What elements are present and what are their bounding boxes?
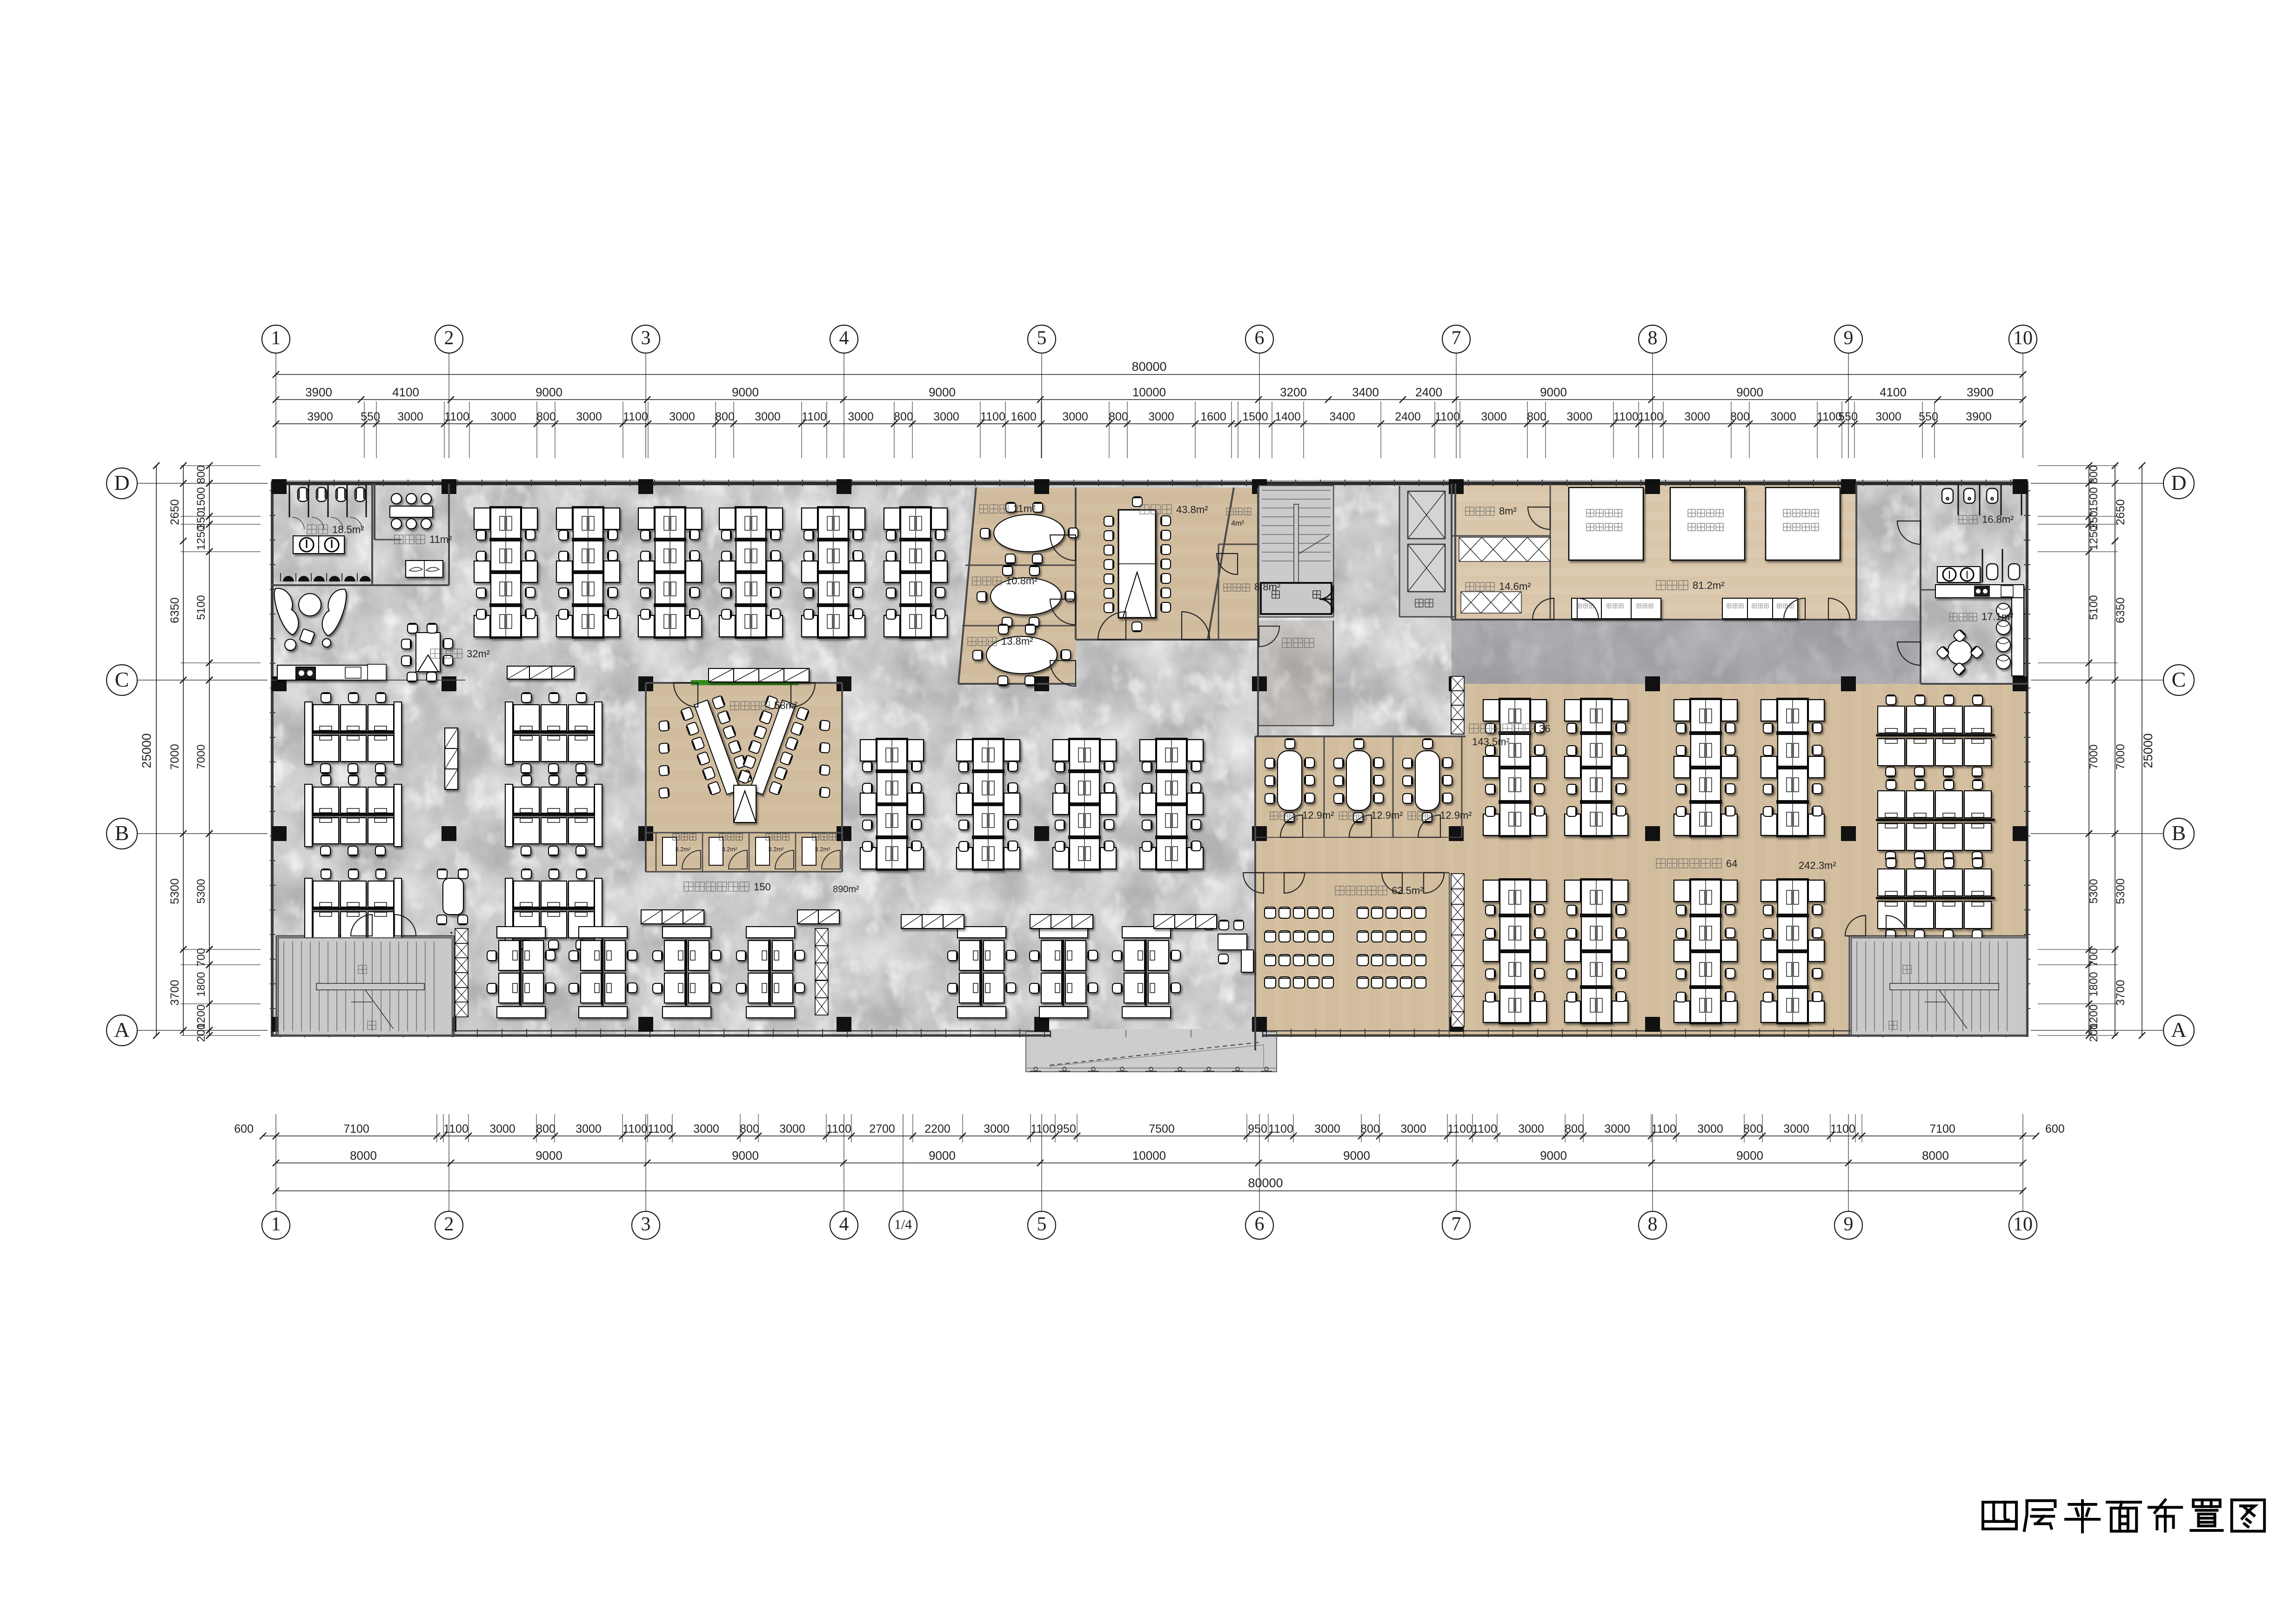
svg-text:8: 8 bbox=[1648, 327, 1658, 349]
svg-text:3000: 3000 bbox=[755, 410, 781, 423]
svg-text:8000: 8000 bbox=[1922, 1149, 1949, 1162]
svg-text:5300: 5300 bbox=[2114, 878, 2127, 904]
svg-text:800: 800 bbox=[715, 410, 735, 423]
svg-text:3000: 3000 bbox=[1684, 410, 1710, 423]
svg-text:3000: 3000 bbox=[1062, 410, 1088, 423]
svg-text:80000: 80000 bbox=[1248, 1176, 1283, 1190]
svg-text:7000: 7000 bbox=[168, 744, 181, 770]
svg-text:C: C bbox=[115, 668, 129, 691]
svg-text:150: 150 bbox=[754, 881, 771, 893]
svg-text:3200: 3200 bbox=[1280, 385, 1307, 399]
svg-text:700: 700 bbox=[195, 948, 208, 967]
svg-text:10000: 10000 bbox=[1132, 385, 1166, 399]
svg-text:1100: 1100 bbox=[1447, 1122, 1473, 1135]
svg-text:4100: 4100 bbox=[1880, 385, 1907, 399]
svg-text:3000: 3000 bbox=[1148, 410, 1174, 423]
svg-text:12.9m²: 12.9m² bbox=[1371, 809, 1403, 821]
svg-text:1500: 1500 bbox=[2088, 487, 2100, 512]
svg-text:11m²: 11m² bbox=[1013, 503, 1036, 514]
svg-text:3700: 3700 bbox=[2114, 980, 2127, 1006]
svg-text:10: 10 bbox=[2013, 1214, 2033, 1235]
svg-text:9000: 9000 bbox=[1343, 1149, 1370, 1162]
svg-text:3000: 3000 bbox=[693, 1122, 719, 1135]
svg-text:800: 800 bbox=[1109, 410, 1128, 423]
svg-text:1100: 1100 bbox=[1651, 1122, 1676, 1135]
svg-text:2650: 2650 bbox=[168, 499, 181, 525]
svg-text:10000: 10000 bbox=[1132, 1149, 1166, 1162]
svg-text:6: 6 bbox=[1255, 1214, 1265, 1235]
svg-text:4m²: 4m² bbox=[1231, 520, 1244, 528]
svg-text:950: 950 bbox=[1057, 1122, 1076, 1135]
svg-text:62.5m²: 62.5m² bbox=[1392, 885, 1423, 896]
svg-text:1100: 1100 bbox=[623, 410, 648, 423]
svg-text:14.6m²: 14.6m² bbox=[1499, 581, 1531, 592]
svg-text:9000: 9000 bbox=[1540, 1149, 1567, 1162]
svg-text:800: 800 bbox=[1527, 410, 1546, 423]
svg-text:5100: 5100 bbox=[2088, 595, 2100, 620]
svg-text:800: 800 bbox=[740, 1122, 759, 1135]
svg-text:5300: 5300 bbox=[2088, 879, 2100, 903]
svg-text:1250: 1250 bbox=[2088, 525, 2100, 550]
svg-text:3900: 3900 bbox=[307, 410, 333, 423]
svg-text:3400: 3400 bbox=[1329, 410, 1355, 423]
svg-text:1100: 1100 bbox=[802, 410, 827, 423]
svg-text:3000: 3000 bbox=[848, 410, 874, 423]
svg-text:8m²: 8m² bbox=[1499, 505, 1517, 517]
svg-text:9000: 9000 bbox=[536, 385, 562, 399]
svg-text:2400: 2400 bbox=[1395, 410, 1421, 423]
svg-text:12.9m²: 12.9m² bbox=[1302, 809, 1334, 821]
svg-text:2650: 2650 bbox=[2114, 499, 2127, 525]
svg-text:1: 1 bbox=[271, 327, 281, 349]
svg-text:3000: 3000 bbox=[1400, 1122, 1426, 1135]
svg-text:200: 200 bbox=[195, 1023, 208, 1042]
svg-text:3.2m²: 3.2m² bbox=[675, 846, 691, 853]
svg-text:600: 600 bbox=[234, 1122, 254, 1135]
svg-text:12.9m²: 12.9m² bbox=[1440, 809, 1472, 821]
svg-text:1/4: 1/4 bbox=[894, 1217, 912, 1232]
svg-text:25000: 25000 bbox=[140, 733, 154, 768]
svg-text:7500: 7500 bbox=[1149, 1122, 1175, 1135]
svg-text:7100: 7100 bbox=[343, 1122, 369, 1135]
svg-text:3000: 3000 bbox=[576, 410, 602, 423]
svg-text:8000: 8000 bbox=[350, 1149, 377, 1162]
svg-text:1500: 1500 bbox=[195, 487, 208, 512]
svg-text:800: 800 bbox=[894, 410, 913, 423]
svg-text:1800: 1800 bbox=[195, 972, 208, 996]
svg-text:8: 8 bbox=[1648, 1214, 1658, 1235]
svg-text:1100: 1100 bbox=[1031, 1122, 1056, 1135]
svg-text:16.8m²: 16.8m² bbox=[1982, 514, 2014, 525]
svg-text:32m²: 32m² bbox=[467, 648, 490, 660]
svg-text:3000: 3000 bbox=[1566, 410, 1593, 423]
svg-text:3000: 3000 bbox=[1518, 1122, 1544, 1135]
svg-text:9000: 9000 bbox=[929, 1149, 956, 1162]
svg-text:7: 7 bbox=[1452, 327, 1461, 349]
svg-text:3900: 3900 bbox=[1967, 385, 1994, 399]
svg-text:800: 800 bbox=[1360, 1122, 1380, 1135]
svg-text:3900: 3900 bbox=[1966, 410, 1992, 423]
svg-text:11m²: 11m² bbox=[429, 534, 452, 545]
svg-text:1100: 1100 bbox=[648, 1122, 673, 1135]
svg-text:1500: 1500 bbox=[1242, 410, 1268, 423]
svg-text:3: 3 bbox=[641, 1214, 651, 1235]
svg-text:550: 550 bbox=[1919, 410, 1938, 423]
svg-text:5100: 5100 bbox=[195, 595, 208, 620]
svg-text:5: 5 bbox=[1037, 1214, 1047, 1235]
svg-text:81.2m²: 81.2m² bbox=[1693, 580, 1724, 591]
svg-text:80000: 80000 bbox=[1131, 360, 1166, 374]
svg-text:3000: 3000 bbox=[397, 410, 423, 423]
svg-text:550: 550 bbox=[361, 410, 380, 423]
svg-text:B: B bbox=[2172, 821, 2186, 845]
svg-text:950: 950 bbox=[1248, 1122, 1267, 1135]
svg-text:3000: 3000 bbox=[1783, 1122, 1809, 1135]
svg-text:4: 4 bbox=[839, 327, 849, 349]
svg-text:3000: 3000 bbox=[779, 1122, 805, 1135]
svg-text:9000: 9000 bbox=[1736, 385, 1763, 399]
svg-text:A: A bbox=[2171, 1018, 2186, 1042]
svg-text:3000: 3000 bbox=[1770, 410, 1796, 423]
svg-text:2200: 2200 bbox=[924, 1122, 951, 1135]
svg-text:1100: 1100 bbox=[1830, 1122, 1855, 1135]
svg-text:3000: 3000 bbox=[576, 1122, 602, 1135]
svg-text:58m²: 58m² bbox=[774, 700, 797, 711]
svg-text:5300: 5300 bbox=[168, 878, 181, 904]
svg-text:3000: 3000 bbox=[1697, 1122, 1723, 1135]
svg-text:36: 36 bbox=[1539, 723, 1550, 735]
svg-text:9000: 9000 bbox=[732, 385, 759, 399]
svg-text:1250: 1250 bbox=[195, 525, 208, 550]
svg-text:1100: 1100 bbox=[826, 1122, 851, 1135]
svg-text:25000: 25000 bbox=[2141, 733, 2155, 768]
svg-text:1100: 1100 bbox=[443, 1122, 469, 1135]
svg-text:550: 550 bbox=[1838, 410, 1858, 423]
svg-text:5300: 5300 bbox=[195, 879, 208, 903]
svg-text:1400: 1400 bbox=[1275, 410, 1301, 423]
svg-text:800: 800 bbox=[2088, 465, 2100, 484]
svg-text:1100: 1100 bbox=[1638, 410, 1663, 423]
svg-text:64: 64 bbox=[1726, 858, 1737, 869]
svg-text:1800: 1800 bbox=[2088, 972, 2100, 996]
svg-text:3000: 3000 bbox=[669, 410, 695, 423]
svg-text:D: D bbox=[114, 471, 129, 494]
svg-text:C: C bbox=[2172, 668, 2186, 691]
svg-text:1600: 1600 bbox=[1200, 410, 1226, 423]
svg-text:3400: 3400 bbox=[1352, 385, 1379, 399]
svg-text:9: 9 bbox=[1844, 1214, 1854, 1235]
svg-text:7000: 7000 bbox=[195, 744, 208, 769]
svg-text:1100: 1100 bbox=[1613, 410, 1639, 423]
svg-text:3000: 3000 bbox=[933, 410, 959, 423]
svg-text:7000: 7000 bbox=[2114, 744, 2127, 770]
svg-text:3000: 3000 bbox=[490, 410, 516, 423]
svg-text:2400: 2400 bbox=[1415, 385, 1442, 399]
svg-text:1100: 1100 bbox=[980, 410, 1005, 423]
svg-text:7000: 7000 bbox=[2088, 744, 2100, 769]
svg-text:9000: 9000 bbox=[1736, 1149, 1763, 1162]
svg-text:B: B bbox=[115, 821, 129, 845]
svg-text:242.3m²: 242.3m² bbox=[1799, 860, 1836, 871]
svg-text:4100: 4100 bbox=[392, 385, 419, 399]
svg-text:3000: 3000 bbox=[1314, 1122, 1340, 1135]
svg-text:800: 800 bbox=[1743, 1122, 1763, 1135]
svg-text:600: 600 bbox=[2045, 1122, 2065, 1135]
svg-text:890m²: 890m² bbox=[833, 884, 859, 895]
svg-text:9: 9 bbox=[1844, 327, 1854, 349]
svg-text:200: 200 bbox=[2088, 1023, 2100, 1042]
svg-text:9000: 9000 bbox=[732, 1149, 759, 1162]
svg-text:13.8m²: 13.8m² bbox=[1001, 635, 1033, 647]
svg-text:800: 800 bbox=[195, 465, 208, 484]
svg-text:1100: 1100 bbox=[1268, 1122, 1293, 1135]
svg-text:3900: 3900 bbox=[305, 385, 332, 399]
svg-text:D: D bbox=[2171, 471, 2186, 494]
svg-text:9000: 9000 bbox=[536, 1149, 562, 1162]
svg-text:800: 800 bbox=[1565, 1122, 1584, 1135]
svg-text:3700: 3700 bbox=[168, 980, 181, 1006]
svg-text:3000: 3000 bbox=[1481, 410, 1507, 423]
svg-text:800: 800 bbox=[536, 1122, 556, 1135]
svg-text:17.1m²: 17.1m² bbox=[1981, 611, 2013, 622]
svg-text:3000: 3000 bbox=[1604, 1122, 1630, 1135]
svg-text:1100: 1100 bbox=[623, 1122, 648, 1135]
svg-text:1100: 1100 bbox=[444, 410, 469, 423]
svg-text:800: 800 bbox=[1730, 410, 1750, 423]
svg-text:3000: 3000 bbox=[1875, 410, 1901, 423]
svg-text:A: A bbox=[114, 1018, 129, 1042]
svg-text:3.2m²: 3.2m² bbox=[768, 846, 784, 853]
svg-text:3: 3 bbox=[641, 327, 651, 349]
svg-text:2700: 2700 bbox=[869, 1122, 895, 1135]
svg-text:9000: 9000 bbox=[929, 385, 956, 399]
svg-text:43.8m²: 43.8m² bbox=[1176, 504, 1208, 515]
svg-text:6350: 6350 bbox=[2114, 597, 2127, 623]
svg-text:9000: 9000 bbox=[1540, 385, 1567, 399]
svg-text:1100: 1100 bbox=[1472, 1122, 1497, 1135]
svg-text:6350: 6350 bbox=[168, 597, 181, 623]
svg-text:4: 4 bbox=[839, 1214, 849, 1235]
svg-text:10.8m²: 10.8m² bbox=[1006, 575, 1038, 587]
svg-text:2: 2 bbox=[444, 1214, 454, 1235]
svg-text:2: 2 bbox=[444, 327, 454, 349]
svg-text:7: 7 bbox=[1452, 1214, 1461, 1235]
svg-text:6: 6 bbox=[1255, 327, 1265, 349]
svg-text:143.5m²: 143.5m² bbox=[1472, 736, 1510, 748]
svg-text:3000: 3000 bbox=[489, 1122, 515, 1135]
svg-text:1: 1 bbox=[271, 1214, 281, 1235]
svg-text:1600: 1600 bbox=[1011, 410, 1037, 423]
svg-text:3.2m²: 3.2m² bbox=[815, 846, 830, 853]
svg-text:5: 5 bbox=[1037, 327, 1047, 349]
svg-text:10: 10 bbox=[2013, 327, 2033, 349]
svg-text:18.5m²: 18.5m² bbox=[332, 524, 364, 535]
svg-text:7100: 7100 bbox=[1929, 1122, 1955, 1135]
svg-text:800: 800 bbox=[536, 410, 556, 423]
svg-text:3.2m²: 3.2m² bbox=[722, 846, 737, 853]
svg-text:8.8m²: 8.8m² bbox=[1254, 581, 1280, 593]
svg-text:3000: 3000 bbox=[984, 1122, 1010, 1135]
